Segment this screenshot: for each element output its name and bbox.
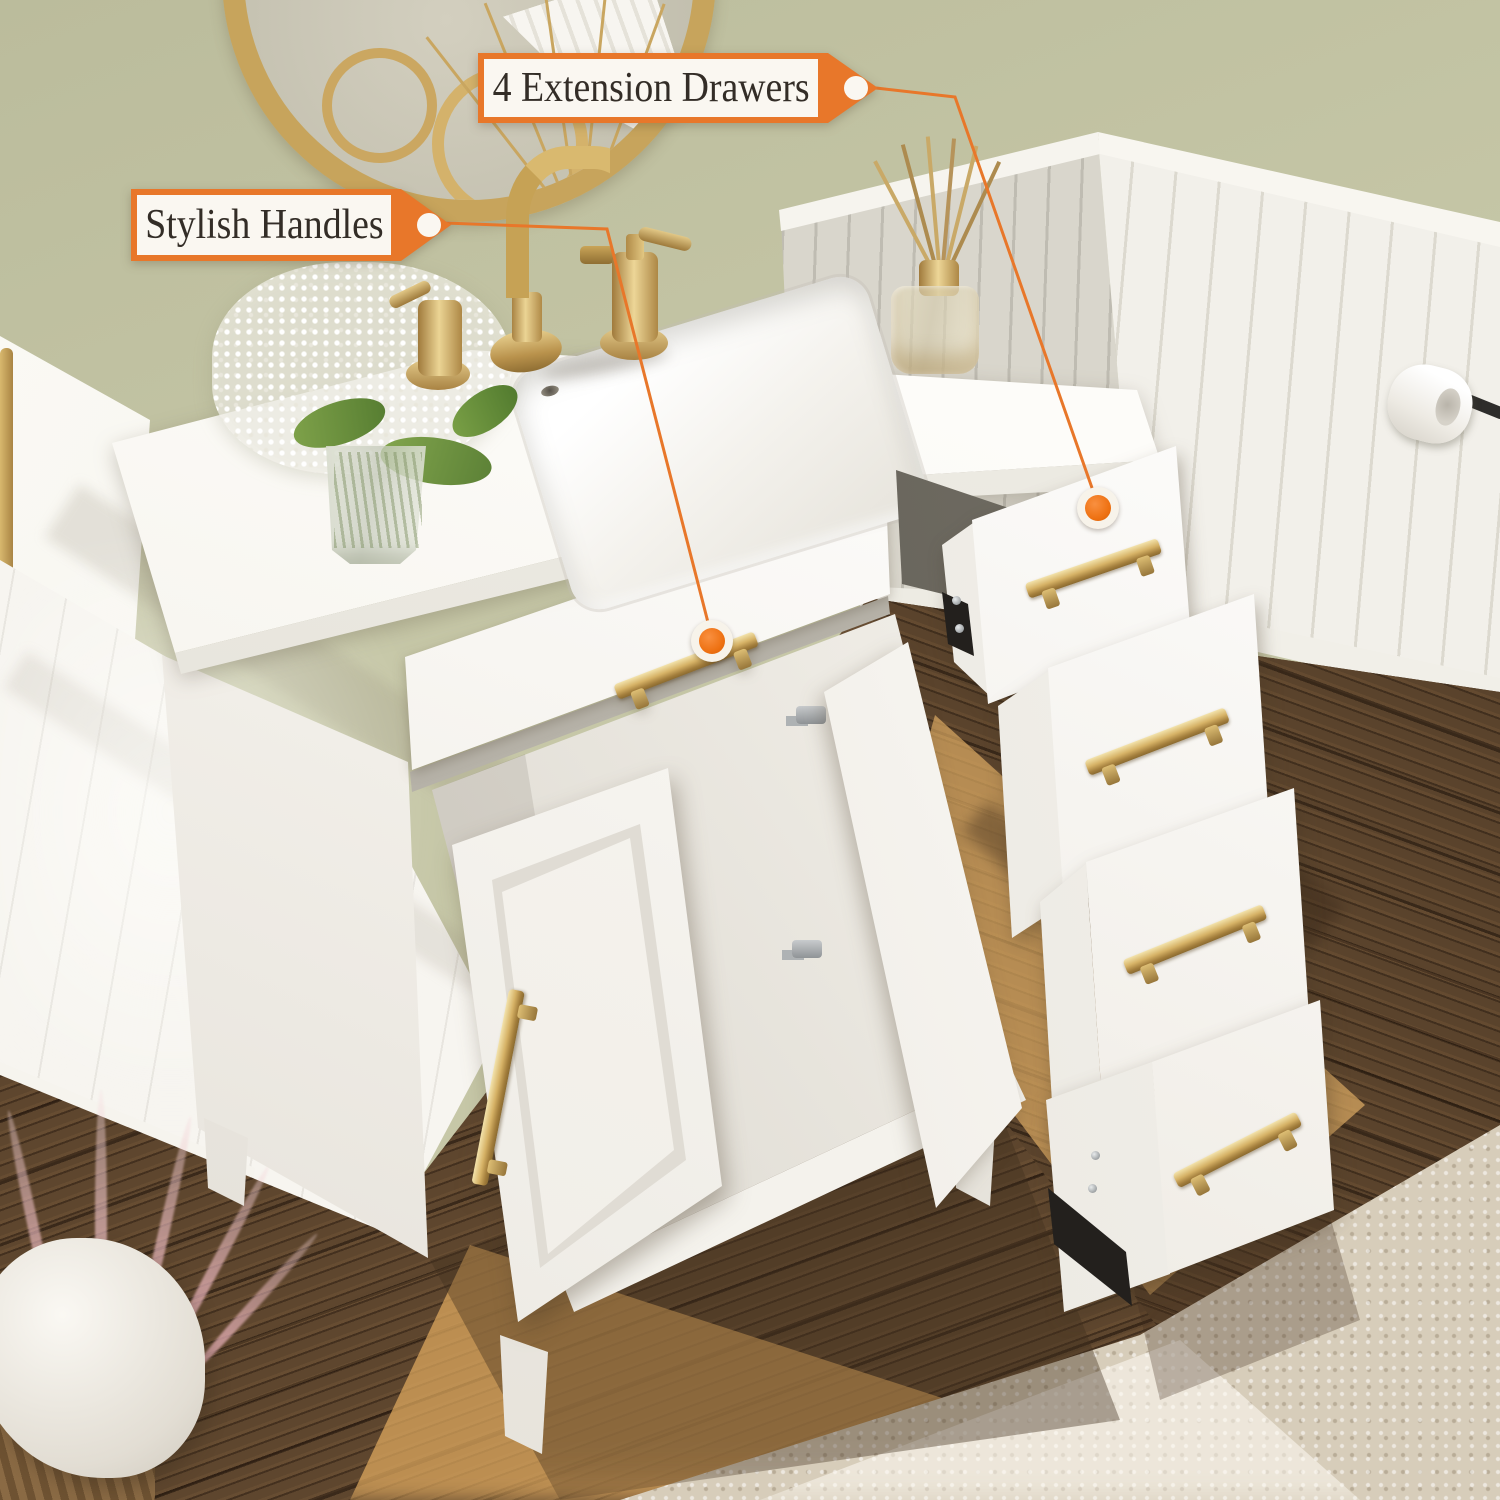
- drawer-4-screw-2: [1088, 1184, 1097, 1193]
- drawer-marker-dot: [1077, 487, 1119, 529]
- diffuser-glass-jar: [891, 286, 979, 374]
- drawer-4-screw-1: [1091, 1151, 1100, 1160]
- stylish-handles-label: Stylish Handles: [145, 201, 383, 249]
- faucet-lever-body: [418, 300, 462, 376]
- soap-dispenser-body: [612, 252, 658, 342]
- vase-stems: [334, 452, 422, 548]
- handle-marker-dot: [691, 620, 733, 662]
- extension-drawers-label: 4 Extension Drawers: [492, 64, 809, 112]
- tag-hole-icon: [417, 213, 441, 237]
- faucet-column: [512, 292, 542, 342]
- bathroom-vanity-product-photo: 4 Extension Drawers Stylish Handles: [0, 0, 1500, 1500]
- callout-tag-stylish-handles: Stylish Handles: [131, 189, 451, 261]
- tag-hole-icon: [844, 76, 868, 100]
- faucet-spout-nozzle: [580, 246, 614, 264]
- callout-tag-extension-drawers: 4 Extension Drawers: [478, 53, 878, 123]
